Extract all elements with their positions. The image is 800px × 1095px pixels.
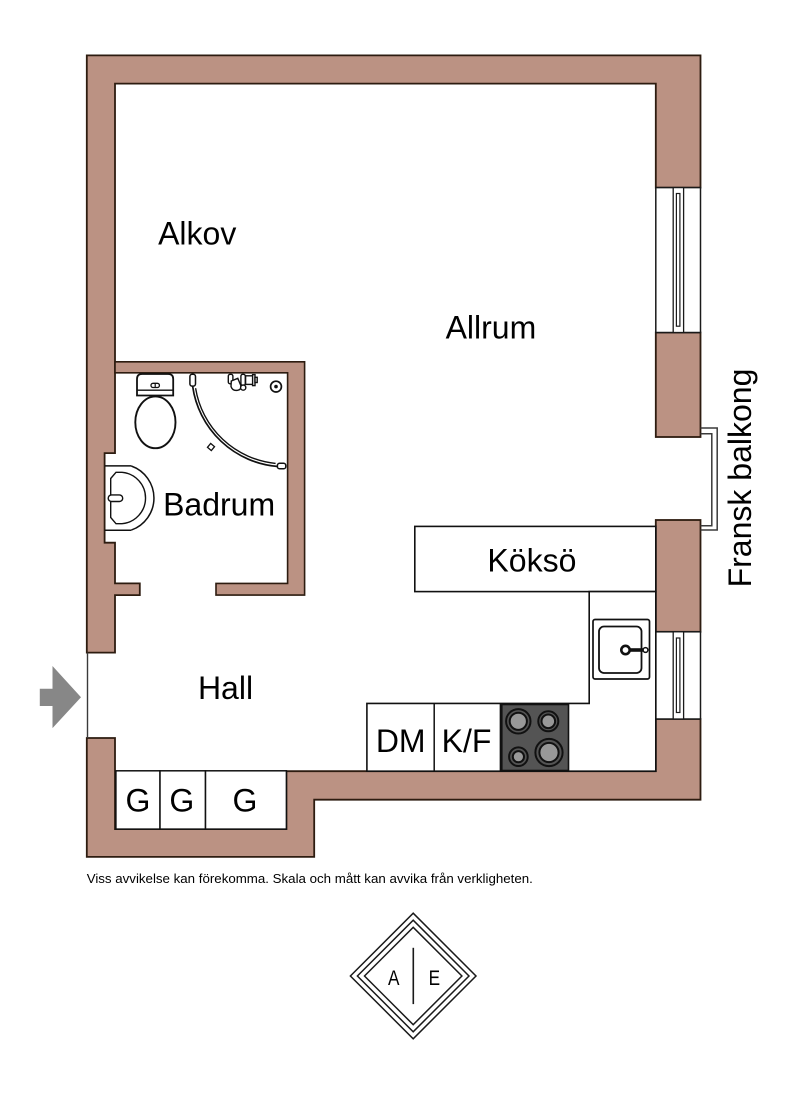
svg-text:DM: DM [376,723,426,759]
svg-text:G: G [126,783,151,819]
svg-text:Köksö: Köksö [487,543,576,579]
svg-text:E: E [429,966,440,990]
svg-text:Alkov: Alkov [158,215,236,251]
svg-text:Viss avvikelse kan förekomma.: Viss avvikelse kan förekomma. Skala och … [87,871,533,886]
svg-text:K/F: K/F [442,723,492,759]
svg-text:Allrum: Allrum [446,310,537,346]
svg-text:A: A [388,966,399,990]
svg-text:Badrum: Badrum [163,486,275,522]
svg-text:G: G [233,783,258,819]
svg-text:Hall: Hall [198,670,253,706]
svg-text:Fransk balkong: Fransk balkong [722,369,758,588]
svg-text:G: G [169,783,194,819]
